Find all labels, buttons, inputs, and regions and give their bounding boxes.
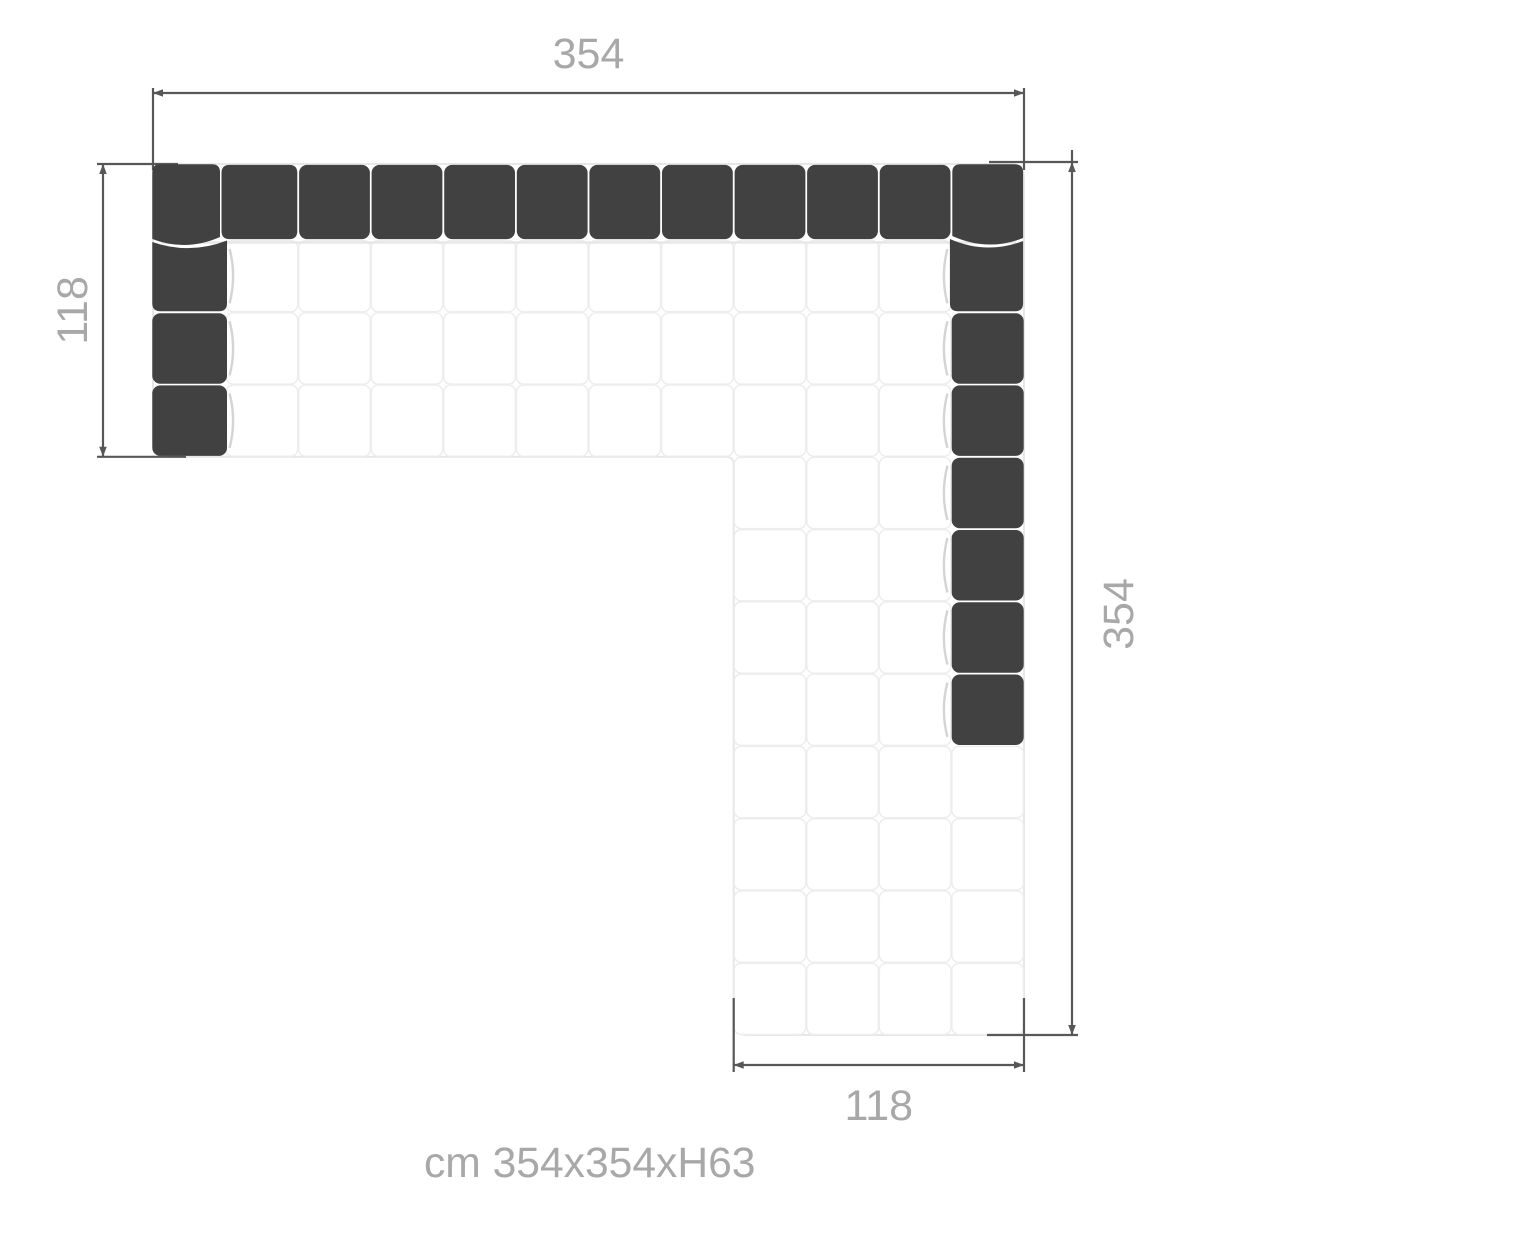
svg-text:cm 354x354xH63: cm 354x354xH63 <box>424 1139 755 1187</box>
svg-text:118: 118 <box>49 276 97 345</box>
svg-text:354: 354 <box>553 30 625 78</box>
svg-text:354: 354 <box>1095 578 1143 650</box>
svg-text:118: 118 <box>845 1082 914 1130</box>
